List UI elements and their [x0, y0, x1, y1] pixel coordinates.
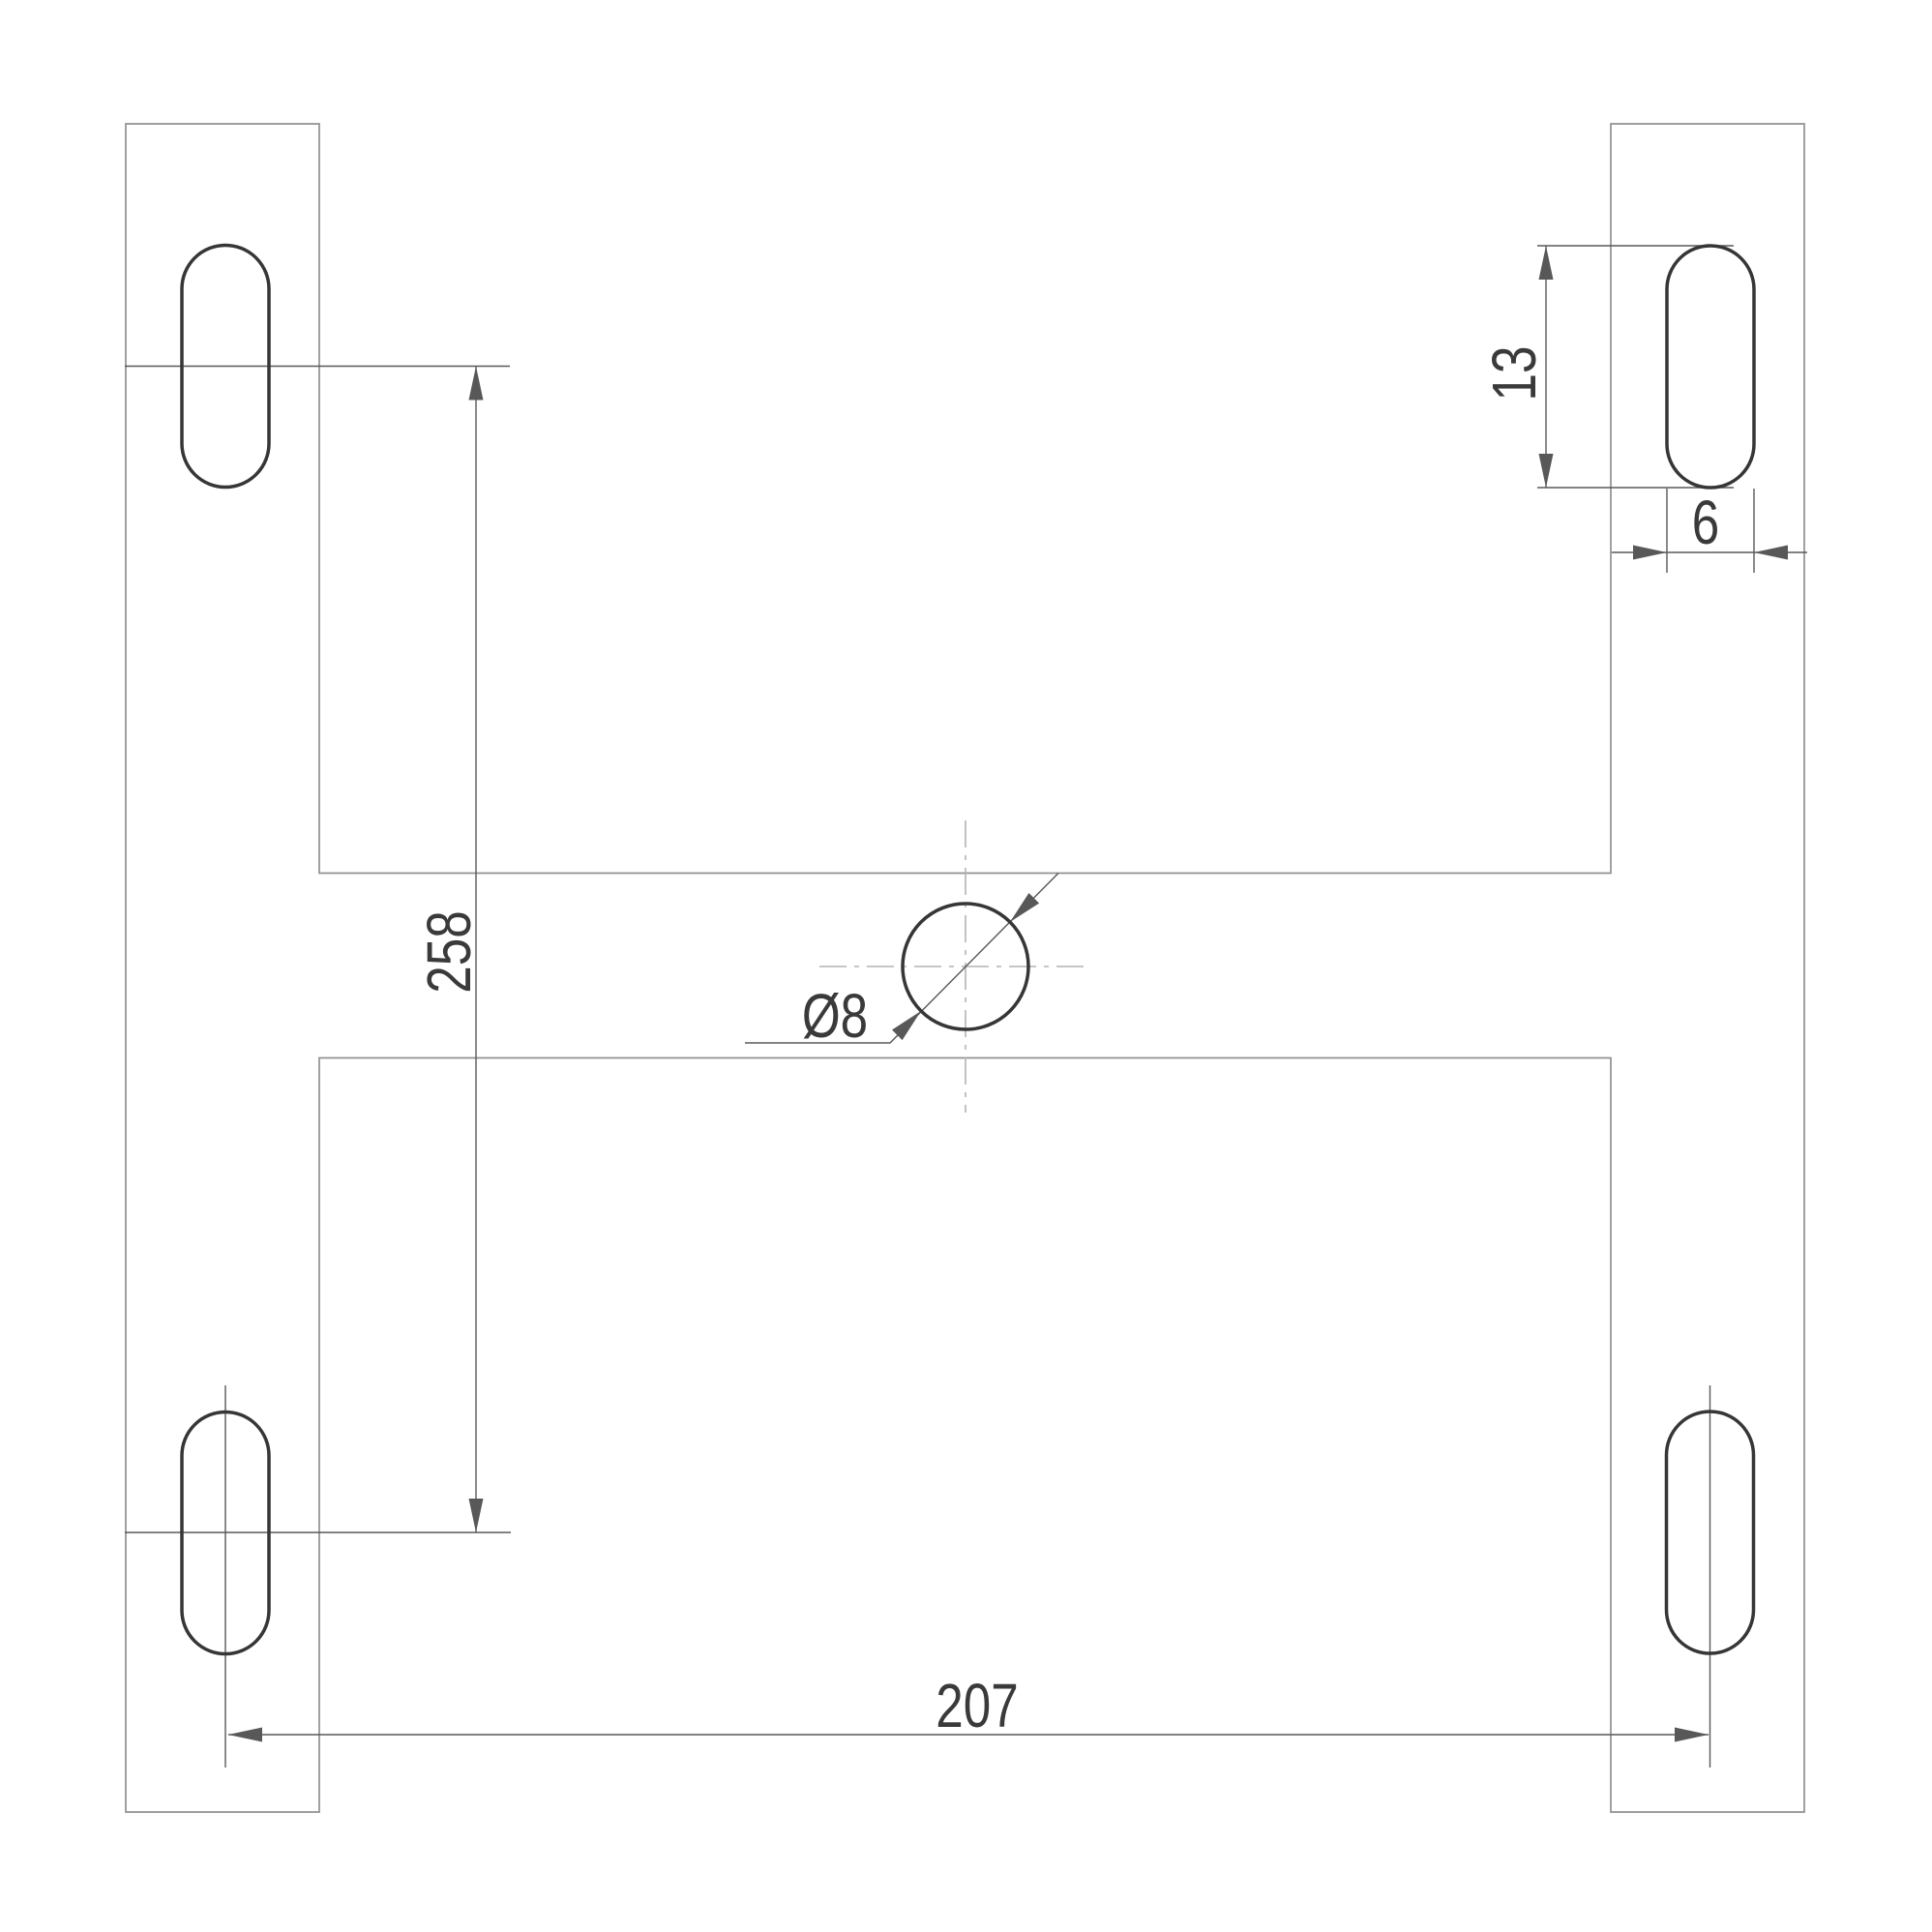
engineering-drawing: 258 207 13 6 Ø8: [0, 0, 1932, 1932]
dim-13-label: 13: [1481, 346, 1550, 401]
dim-258-label: 258: [416, 910, 485, 993]
dim-13-arrow-top: [1539, 246, 1554, 280]
dim-6-label: 6: [1692, 490, 1719, 558]
slot-top-right: [1667, 246, 1754, 488]
dia-8-label: Ø8: [802, 983, 868, 1052]
dim-13-arrow-bottom: [1539, 454, 1554, 488]
dim-258-arrow-bottom: [469, 1499, 484, 1532]
dim-207-arrow-right: [1675, 1728, 1709, 1742]
dim-6-arrow-left: [1633, 546, 1667, 560]
drawing-canvas: 258 207 13 6 Ø8: [0, 0, 1932, 1932]
dim-207-label: 207: [936, 1673, 1018, 1741]
dim-258-arrow-top: [469, 367, 484, 401]
dim-6-arrow-right: [1754, 546, 1788, 560]
dim-207-arrow-left: [228, 1728, 262, 1742]
